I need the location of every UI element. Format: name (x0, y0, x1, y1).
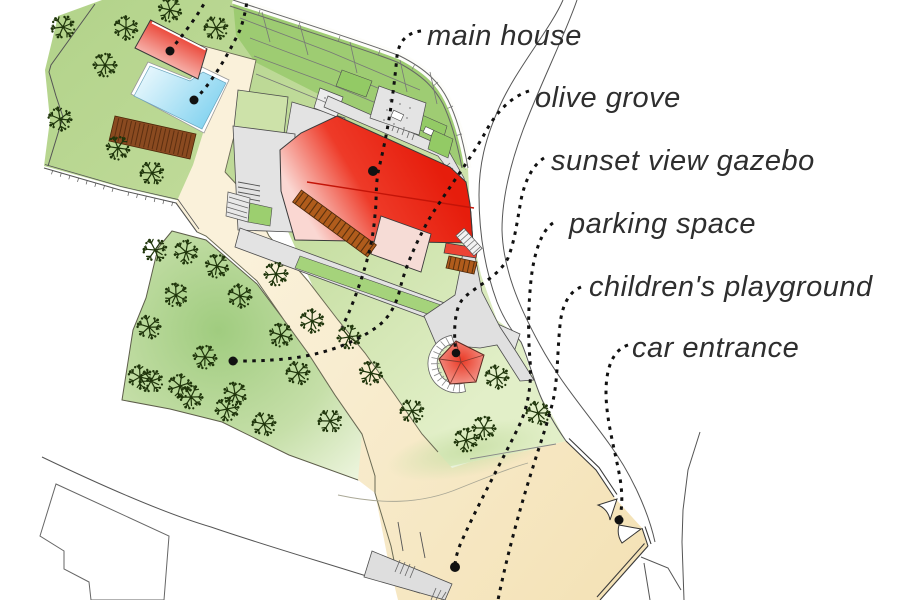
svg-text:olive grove: olive grove (535, 82, 681, 114)
svg-text:sunset view gazebo: sunset view gazebo (551, 145, 815, 177)
svg-text:main house: main house (427, 20, 582, 52)
svg-text:parking space: parking space (568, 208, 756, 240)
svg-text:car entrance: car entrance (632, 332, 799, 364)
svg-text:children's playground: children's playground (589, 271, 873, 303)
